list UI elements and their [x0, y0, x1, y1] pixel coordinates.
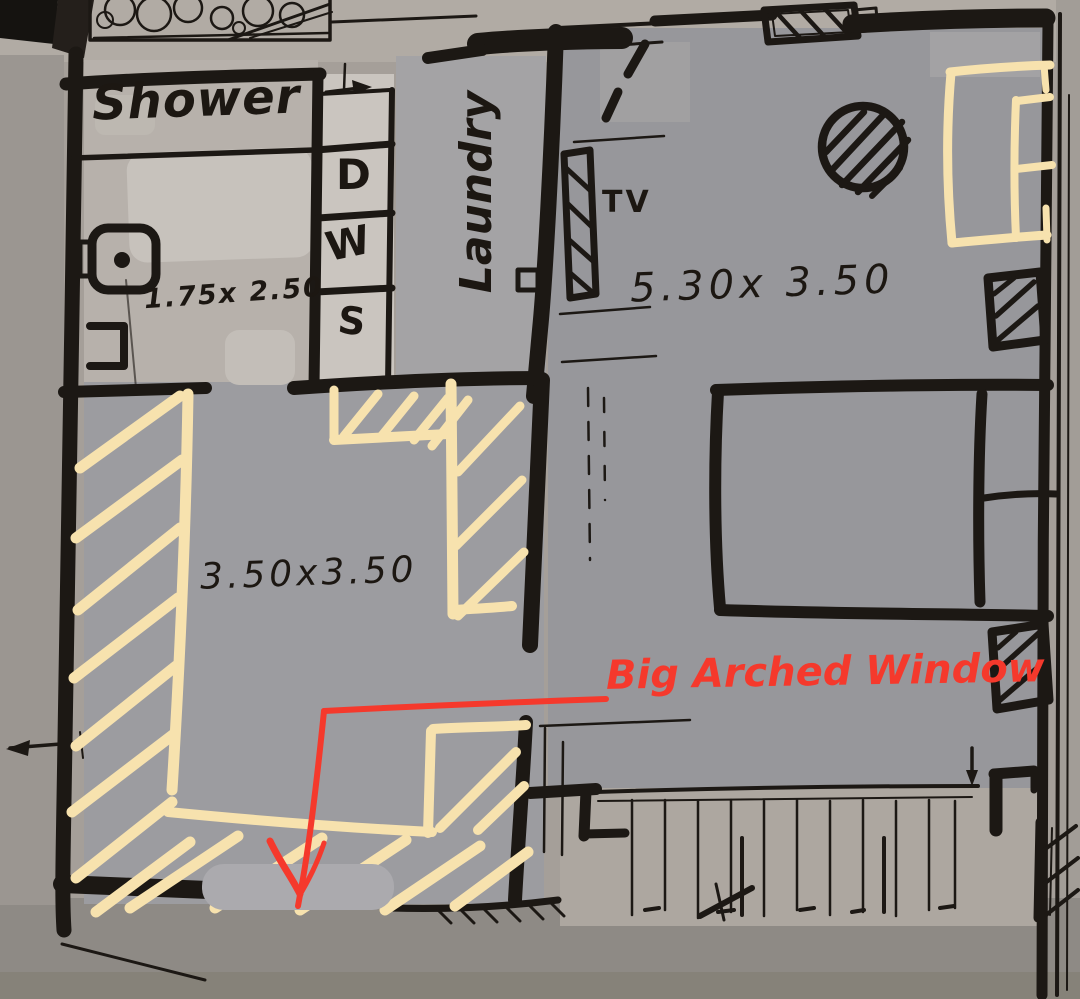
living-room-dimension: 3.50x3.50: [199, 552, 418, 596]
bedroom-dimension: 5.30x 3.50: [629, 259, 895, 308]
plan-drawing: [0, 0, 1080, 999]
appliance-sink-label: S: [336, 301, 367, 342]
appliance-washer-label: W: [322, 220, 373, 268]
floor-plan-sketch: Shower D W S 1.75x 2.50 Laundry TV 5.30x…: [0, 0, 1080, 999]
laundry-label: Laundry: [455, 37, 511, 347]
arched-window-note: Big Arched Window: [606, 648, 1045, 696]
appliance-dryer-label: D: [336, 154, 371, 196]
tv-label: TV: [602, 188, 652, 218]
shower-room-label: Shower: [91, 72, 301, 127]
